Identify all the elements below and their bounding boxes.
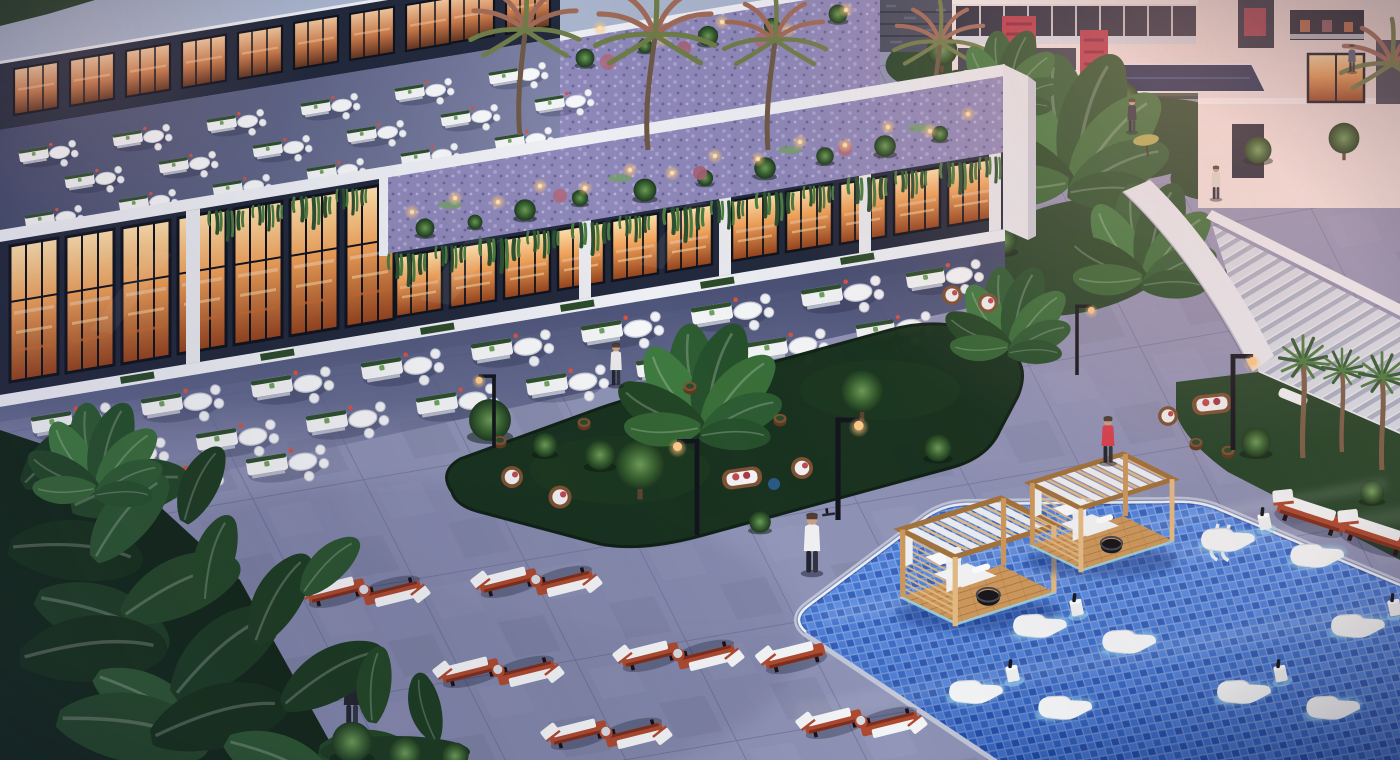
color-grade	[0, 0, 1400, 760]
resort-scene	[0, 0, 1400, 760]
resort-render-image: Aerial dusk rendering of a resort: a two…	[0, 0, 1400, 760]
